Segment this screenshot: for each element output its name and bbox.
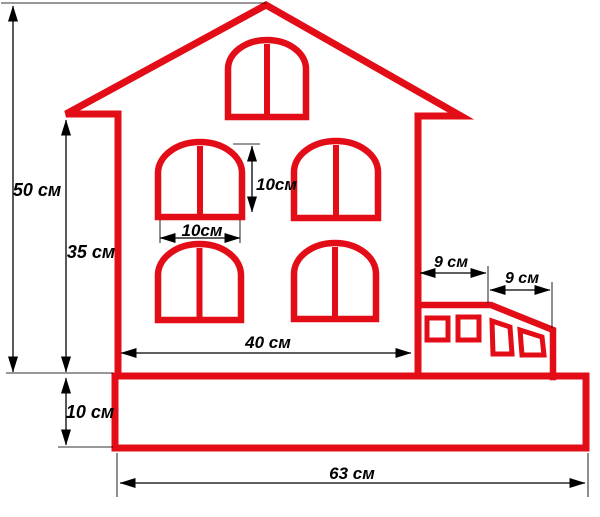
label-wall-height: 35 см [67, 242, 115, 262]
label-house-width: 40 см [244, 333, 291, 352]
label-porch-flat-width: 9 см [434, 254, 468, 271]
blueprint-canvas: 50 см 35 см 10 см 10см 10см 40 см 9 см 9… [0, 0, 600, 517]
upper-right-window [294, 141, 378, 218]
lower-right-window [294, 243, 376, 319]
attic-window [228, 40, 306, 117]
house-drawing [66, 5, 586, 448]
label-window-width: 10см [182, 221, 223, 240]
label-porch-slope-width: 9 см [505, 270, 539, 287]
label-window-height: 10см [256, 175, 297, 194]
porch-window-2 [458, 317, 479, 340]
porch-window-4 [520, 330, 544, 355]
upper-left-window [158, 142, 242, 217]
label-base-height: 10 см [66, 402, 114, 422]
label-total-height: 50 см [13, 180, 61, 200]
label-base-width: 63 см [329, 464, 375, 483]
porch-window-3 [492, 321, 512, 354]
house-dimension-diagram: 50 см 35 см 10 см 10см 10см 40 см 9 см 9… [0, 0, 600, 517]
porch-window-1 [427, 318, 448, 340]
base-slab [115, 376, 586, 448]
lower-left-window [158, 244, 241, 320]
